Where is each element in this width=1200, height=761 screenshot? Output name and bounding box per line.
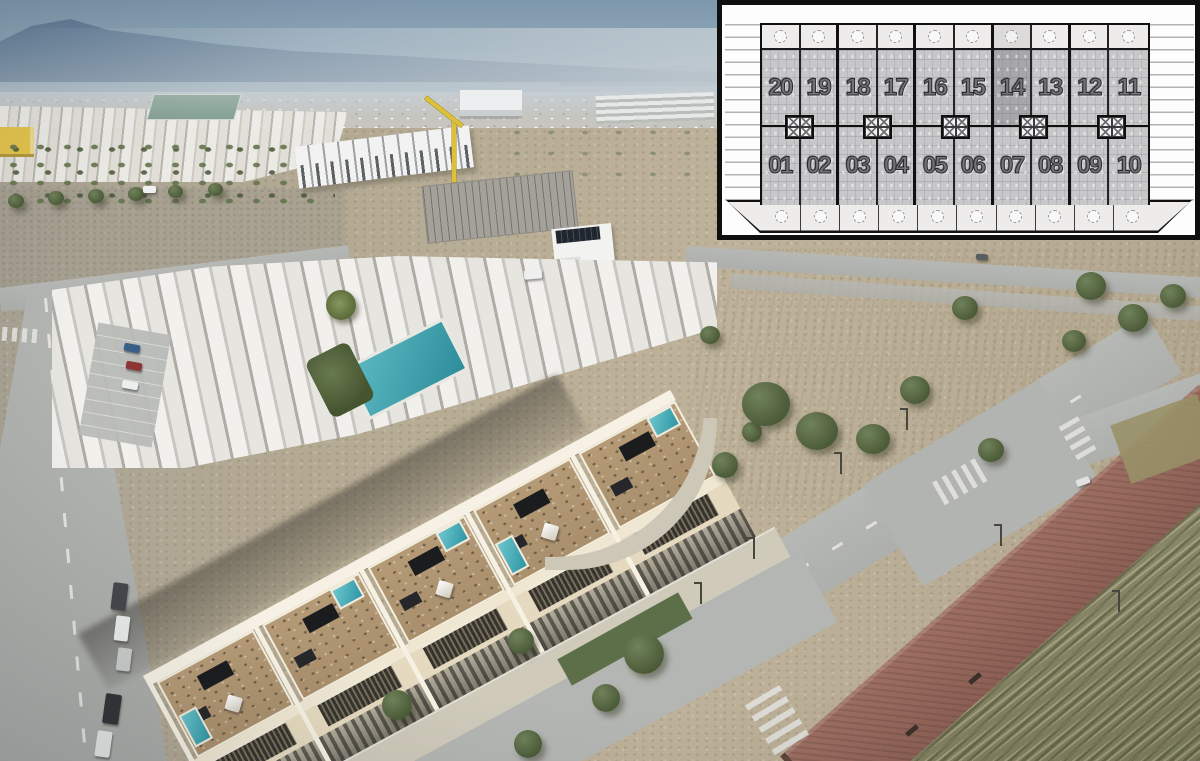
- terrace-table-icon: [851, 30, 864, 43]
- solar-panels: [555, 226, 600, 244]
- tree: [796, 412, 838, 450]
- street-light: [840, 452, 842, 474]
- unit-number: 18: [846, 74, 870, 102]
- tree: [624, 634, 664, 674]
- unit-number: 19: [807, 74, 831, 102]
- parked-car: [116, 647, 133, 672]
- unit-number: 16: [923, 74, 947, 102]
- unit-number: 06: [961, 152, 985, 180]
- plan-terrace: [916, 25, 955, 50]
- tree: [88, 189, 104, 203]
- street-light: [906, 408, 908, 430]
- terrace-table-icon: [889, 30, 902, 43]
- plan-terrace: [878, 25, 917, 50]
- tree: [8, 194, 24, 208]
- plan-terrace: [955, 25, 994, 50]
- plan-terrace: [957, 202, 996, 231]
- unit-number: 07: [1000, 152, 1024, 180]
- plan-terrace: [801, 202, 840, 231]
- street-light: [1000, 524, 1002, 546]
- stair-core-icon: [863, 115, 892, 139]
- warehouse-green-roof: [146, 94, 241, 120]
- stair-core-icon: [1019, 115, 1048, 139]
- unit-number: 11: [1118, 74, 1140, 102]
- terrace-table-icon: [931, 210, 944, 223]
- tree: [208, 183, 223, 196]
- palm-tree: [326, 290, 356, 320]
- tree: [1076, 272, 1106, 300]
- unit-number: 12: [1077, 74, 1101, 102]
- plan-terrace: [762, 25, 801, 50]
- terrace-table-icon: [1126, 210, 1139, 223]
- plan-terrace-unit-14: [994, 25, 1033, 50]
- tree: [514, 730, 542, 758]
- unit-number: 08: [1038, 152, 1062, 180]
- street-light: [700, 582, 702, 604]
- tree: [128, 187, 144, 201]
- plan-parking-stripes-right: [1150, 13, 1194, 203]
- terrace-table-icon: [1009, 210, 1022, 223]
- tree: [168, 185, 183, 198]
- tree: [508, 628, 534, 654]
- terrace-table-icon: [1043, 30, 1056, 43]
- tree: [742, 382, 790, 426]
- plan-terrace: [762, 202, 801, 231]
- unit-number: 17: [884, 74, 908, 102]
- stair-core-icon: [941, 115, 970, 139]
- plan-terrace: [1114, 202, 1152, 231]
- plan-terrace: [879, 202, 918, 231]
- terrace-table-icon: [1048, 210, 1061, 223]
- unit-number: 01: [768, 152, 792, 180]
- terrace-table-icon: [1005, 30, 1018, 43]
- plan-terrace: [1071, 25, 1110, 50]
- plan-parking-stripes-left: [725, 13, 761, 203]
- unit-number: 02: [807, 152, 831, 180]
- unit-number: 14: [1000, 74, 1024, 102]
- plan-terrace: [1075, 202, 1114, 231]
- tree: [48, 191, 64, 205]
- terrace-table-icon: [774, 30, 787, 43]
- tree: [700, 326, 720, 344]
- unit-number: 20: [768, 74, 792, 102]
- terrace-table-icon: [775, 210, 788, 223]
- tree: [592, 684, 620, 712]
- plan-terrace: [839, 25, 878, 50]
- pedestrian-crossing: [2, 327, 39, 343]
- terrace-table-icon: [892, 210, 905, 223]
- stair-core-icon: [785, 115, 814, 139]
- tree: [712, 452, 738, 478]
- plan-building-block: 20 19 18 17 16 15 14 13 12 11 01 02 03 0…: [760, 23, 1150, 205]
- unit-number: 05: [923, 152, 947, 180]
- floor-plan-sheet: 20 19 18 17 16 15 14 13 12 11 01 02 03 0…: [722, 5, 1195, 235]
- plan-terrace: [840, 202, 879, 231]
- floor-plan-overlay: 20 19 18 17 16 15 14 13 12 11 01 02 03 0…: [717, 0, 1200, 240]
- plan-terrace: [1032, 25, 1071, 50]
- tree: [1160, 284, 1186, 308]
- tree: [952, 296, 978, 320]
- plan-terrace: [1036, 202, 1075, 231]
- white-office-building: [460, 90, 522, 116]
- sparse-trees: [500, 122, 715, 180]
- plan-terrace: [997, 202, 1036, 231]
- plan-terrace: [918, 202, 957, 231]
- unit-number: 09: [1077, 152, 1101, 180]
- crane-icon: [452, 120, 456, 182]
- tree: [856, 424, 890, 454]
- tree: [382, 690, 412, 720]
- tree: [1062, 330, 1086, 352]
- terrace-table-icon: [812, 30, 825, 43]
- tree: [978, 438, 1004, 462]
- greenhouses: [596, 92, 715, 124]
- terrace-table-icon: [1083, 30, 1096, 43]
- unit-number: 15: [961, 74, 985, 102]
- plan-bottom-terrace-inner: [728, 202, 1190, 231]
- aerial-photo: 20 19 18 17 16 15 14 13 12 11 01 02 03 0…: [0, 0, 1200, 761]
- terrace-table-icon: [966, 30, 979, 43]
- tree: [900, 376, 930, 404]
- terrace-table-icon: [970, 210, 983, 223]
- stair-core-icon: [1097, 115, 1126, 139]
- street-light: [1118, 590, 1120, 612]
- terrace-table-icon: [814, 210, 827, 223]
- car: [976, 254, 988, 261]
- unit-number: 10: [1117, 152, 1141, 180]
- terrace-table-icon: [928, 30, 941, 43]
- street-light: [753, 537, 755, 559]
- plan-terrace: [1109, 25, 1148, 50]
- car: [143, 186, 156, 193]
- terrace-table-icon: [853, 210, 866, 223]
- van: [524, 269, 543, 280]
- terrace-table-icon: [1122, 30, 1135, 43]
- unit-number: 13: [1038, 74, 1062, 102]
- tree: [1118, 304, 1148, 332]
- unit-number: 04: [884, 152, 908, 180]
- terrace-table-icon: [1087, 210, 1100, 223]
- plan-terrace: [801, 25, 840, 50]
- unit-number: 03: [846, 152, 870, 180]
